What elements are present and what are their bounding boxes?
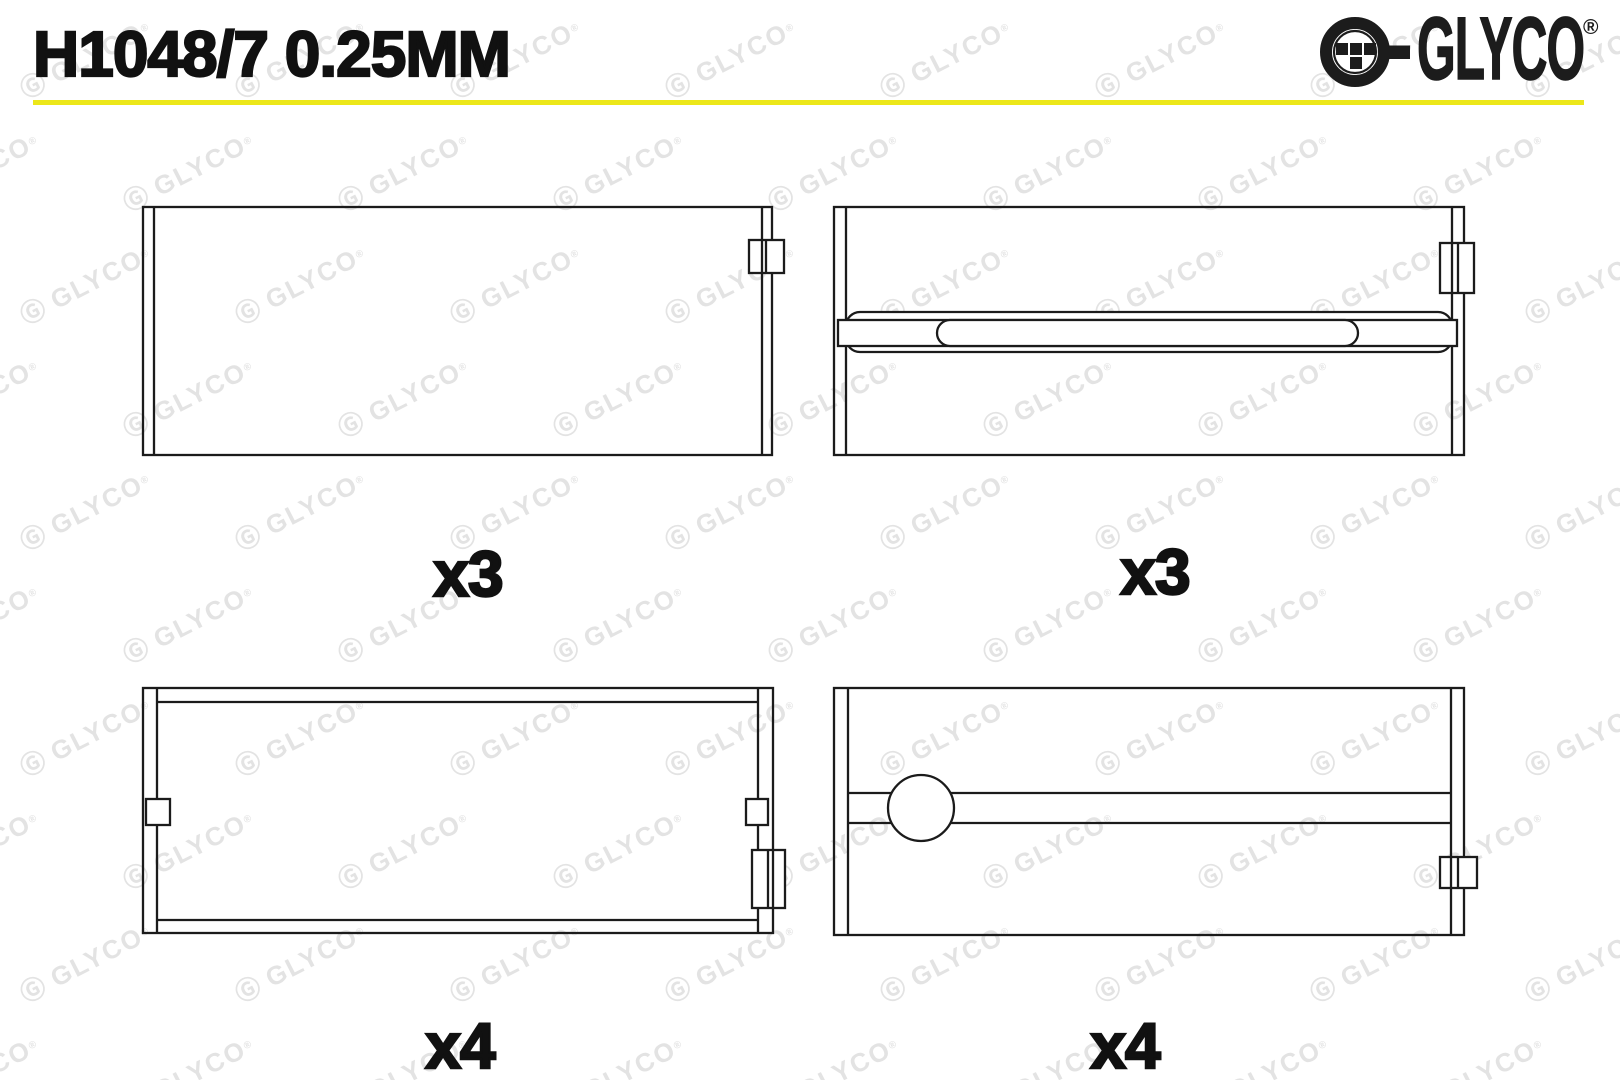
bearing-shell-bottom-right-oil-hole [834, 688, 1477, 935]
bearing-shell-bottom-left [143, 688, 785, 933]
bearing-shell-top-left [143, 207, 784, 455]
quantity-label-top-right: x3 [1120, 540, 1189, 604]
bearing-shell-top-right-oil-groove [834, 207, 1474, 455]
quantity-label-top-left: x3 [433, 542, 502, 606]
bearing-drawings [0, 0, 1620, 1080]
quantity-label-bottom-left: x4 [425, 1014, 494, 1078]
product-diagram-page: Ⓖ GLYCO®Ⓖ GLYCO®Ⓖ GLYCO®Ⓖ GLYCO®Ⓖ GLYCO®… [0, 0, 1620, 1080]
quantity-label-bottom-right: x4 [1090, 1014, 1159, 1078]
